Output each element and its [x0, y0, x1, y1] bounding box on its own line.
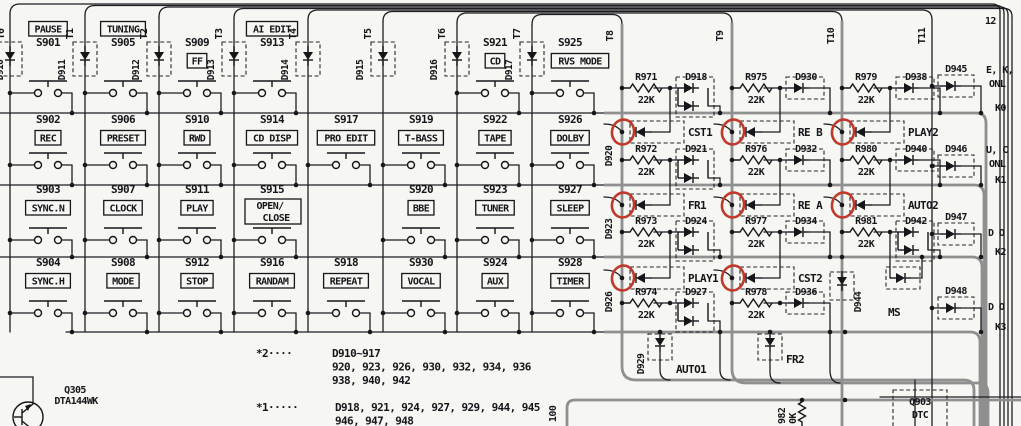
k-dest-label: ONL: [989, 79, 1006, 90]
junction-dot: [294, 330, 299, 335]
switch-caption: CLOCK: [109, 204, 137, 215]
note-star: *1·····: [256, 401, 298, 414]
switch-contact: [428, 310, 435, 317]
diode-icon: [946, 81, 955, 91]
switch-ref: S914: [260, 113, 285, 126]
switch-ref: S927: [558, 183, 582, 196]
terminal-label: T2: [139, 28, 150, 39]
resistor-ref: R974: [635, 287, 657, 298]
switch-ref: S907: [111, 183, 135, 196]
signal-label: AUTO2: [908, 199, 938, 212]
switch-ref: S917: [334, 113, 358, 126]
diode-ref: D911: [57, 59, 68, 80]
terminal-label: T9: [715, 30, 726, 41]
diode-icon: [746, 200, 755, 210]
switch-contact: [204, 310, 211, 317]
diode-icon: [794, 298, 803, 308]
switch-ref: S915: [260, 183, 284, 196]
switch-caption: DOLBY: [556, 134, 584, 145]
switch-caption: REPEAT: [330, 277, 363, 288]
signal-label: PLAY2: [908, 126, 938, 139]
switch-caption: SLEEP: [556, 204, 584, 215]
diode-icon: [684, 101, 693, 111]
switch-ref: S902: [36, 113, 60, 126]
switch-contact: [130, 237, 137, 244]
switch-caption: MODE: [112, 277, 134, 288]
resistor-ref: R979: [855, 72, 877, 83]
junction-dot: [828, 111, 833, 116]
terminal-label: T6: [437, 28, 448, 39]
diode-icon: [765, 338, 775, 346]
diode-icon: [946, 229, 955, 239]
diode-icon: [794, 227, 803, 237]
signal-label: AUTO1: [676, 363, 707, 376]
k-dest-label: U, C: [986, 145, 1008, 156]
diode-icon: [946, 303, 955, 313]
switch-caption: RWD: [189, 134, 206, 145]
switch-caption: OPEN/: [256, 201, 284, 212]
switch-contact: [204, 237, 211, 244]
switch-contact: [279, 162, 286, 169]
switch-ref: S903: [36, 183, 60, 196]
switch-caption: PLAY: [186, 204, 208, 215]
resistor-value: 22K: [748, 95, 765, 106]
switch-contact: [502, 90, 509, 97]
key-matrix-schematic: T0D910T1D911T2D912T3D913T4D914T5D915T6D9…: [0, 0, 1021, 426]
diode-icon: [684, 316, 693, 326]
switch-contact: [408, 310, 415, 317]
junction-dot: [70, 111, 75, 116]
switch-contact: [482, 310, 489, 317]
switch-ref: S912: [185, 256, 209, 269]
diode-icon: [794, 155, 803, 165]
switch-ref: S904: [36, 256, 61, 269]
diode-icon: [684, 245, 693, 255]
resistor-ref: R980: [855, 144, 877, 155]
switch-caption: TAPE: [484, 134, 506, 145]
diode-ref: D944: [853, 291, 864, 312]
terminal-label: T0: [0, 28, 7, 39]
diode-icon: [794, 83, 803, 93]
junction-dot: [592, 255, 597, 260]
switch-caption: REC: [40, 134, 57, 145]
wire: [308, 10, 318, 20]
switch-contact: [184, 90, 191, 97]
k-row-label: K2: [995, 247, 1006, 258]
switch-contact: [35, 162, 42, 169]
switch-ref: S918: [334, 256, 358, 269]
switch-caption: SYNC.H: [32, 277, 65, 288]
diode-icon: [856, 127, 865, 137]
junction-dot: [517, 183, 522, 188]
diode-icon: [655, 338, 665, 346]
wire: [922, 10, 932, 20]
k-row-label: K3: [995, 322, 1006, 333]
wire: [720, 332, 730, 380]
diode-icon: [904, 155, 913, 165]
wire: [722, 13, 732, 23]
note-star: *2····: [256, 347, 292, 360]
switch-caption: PRO EDIT: [324, 134, 368, 145]
resistor-value: 22K: [638, 310, 655, 321]
switch-caption: T-BASS: [405, 134, 438, 145]
junction-dot: [368, 183, 373, 188]
note-text: D918, 921, 924, 927, 929, 944, 945: [335, 401, 540, 414]
switch-ref: S920: [409, 183, 433, 196]
diode-ref: D946: [945, 144, 967, 155]
resistor-ref: 982: [777, 407, 788, 424]
pin-label: 12: [985, 16, 996, 27]
k-row-label: K0: [995, 103, 1006, 114]
switch-contact: [204, 162, 211, 169]
switch-contact: [482, 90, 489, 97]
resistor-value: 22K: [638, 167, 655, 178]
junction-dot: [443, 330, 448, 335]
wire: [234, 9, 244, 19]
junction-dot: [828, 255, 833, 260]
wire: [770, 352, 780, 383]
net-label: 100: [548, 405, 559, 422]
switch-ref: S909: [185, 36, 209, 49]
switch-ref: S901: [36, 36, 61, 49]
junction-dot: [592, 111, 597, 116]
diode-ref: D910: [0, 59, 6, 80]
switch-contact: [55, 310, 62, 317]
junction-dot: [843, 398, 848, 403]
diode-icon: [684, 173, 693, 183]
junction-dot: [219, 255, 224, 260]
switch-caption: TUNING: [107, 25, 140, 36]
junction-dot: [718, 255, 723, 260]
switch-contact: [428, 237, 435, 244]
diode-icon: [636, 273, 645, 283]
switch-contact: [279, 237, 286, 244]
switch-contact: [557, 162, 564, 169]
note-text: 938, 940, 942: [332, 374, 410, 387]
switch-contact: [110, 162, 117, 169]
signal-label: RE B: [798, 126, 823, 139]
wire: [383, 12, 393, 22]
switch-caption: VOCAL: [407, 277, 435, 288]
switch-contact: [577, 310, 584, 317]
diode-ref: D914: [280, 59, 291, 80]
junction-dot: [145, 183, 150, 188]
junction-dot: [368, 330, 373, 335]
k-dest-label: ONL: [989, 159, 1006, 170]
wire: [22, 421, 33, 426]
diode-icon: [154, 52, 164, 60]
signal-label: FR1: [688, 199, 707, 212]
diode-ref: D912: [131, 60, 142, 80]
diode-ref: D917: [504, 60, 515, 80]
switch-contact: [428, 162, 435, 169]
wire: [532, 15, 542, 25]
diode-icon: [746, 273, 755, 283]
resistor-ref: R971: [635, 72, 657, 83]
junction-dot: [70, 183, 75, 188]
junction-dot: [219, 330, 224, 335]
resistor-icon: [799, 402, 806, 426]
junction-dot: [668, 301, 673, 306]
junction-dot: [145, 255, 150, 260]
resistor-value: 0K: [788, 413, 799, 424]
switch-caption: PRESET: [107, 134, 140, 145]
switch-contact: [35, 237, 42, 244]
wire: [832, 12, 842, 22]
junction-dot: [592, 183, 597, 188]
switch-caption: SYNC.N: [32, 204, 65, 215]
junction-dot: [938, 111, 943, 116]
switch-contact: [110, 90, 117, 97]
switch-ref: S926: [558, 113, 583, 126]
diode-icon: [684, 83, 693, 93]
diode-icon: [80, 52, 90, 60]
diode-ref: D913: [206, 59, 217, 80]
switch-contact: [577, 162, 584, 169]
diode-ref: D945: [945, 64, 967, 75]
diode-icon: [896, 273, 905, 283]
switch-contact: [502, 237, 509, 244]
switch-contact: [557, 237, 564, 244]
signal-label: CST2: [798, 272, 822, 285]
resistor-ref: R975: [745, 72, 767, 83]
signal-label: CST1: [688, 126, 713, 139]
wire: [830, 332, 840, 383]
switch-ref: S924: [483, 256, 508, 269]
switch-ref: S911: [185, 183, 210, 196]
terminal-label: T5: [363, 28, 374, 39]
switch-caption: PAUSE: [34, 25, 62, 36]
switch-caption: AUX: [487, 277, 504, 288]
switch-ref: S908: [111, 256, 135, 269]
diode-icon: [746, 127, 755, 137]
wire: [567, 400, 575, 426]
terminal-label: T10: [826, 27, 837, 44]
k-dest-label: D O: [988, 302, 1005, 313]
switch-contact: [55, 237, 62, 244]
switch-contact: [55, 162, 62, 169]
resistor-ref: R978: [745, 287, 767, 298]
switch-contact: [557, 90, 564, 97]
diode-ref: D948: [945, 286, 967, 297]
switch-ref: S922: [483, 113, 507, 126]
switch-caption: AI EDIT: [253, 25, 292, 36]
switch-contact: [259, 162, 266, 169]
switch-contact: [184, 162, 191, 169]
diode-icon: [452, 52, 462, 60]
part-ref: Q903: [909, 397, 931, 408]
junction-dot: [778, 301, 783, 306]
switch-ref: S919: [409, 113, 433, 126]
junction-dot: [145, 330, 150, 335]
resistor-ref: R977: [745, 216, 767, 227]
switch-ref: S913: [260, 36, 284, 49]
switch-caption: TUNER: [481, 204, 510, 215]
diode-icon: [527, 52, 537, 60]
k-row-label: K1: [995, 175, 1006, 186]
switch-contact: [130, 310, 137, 317]
switch-ref: S925: [558, 36, 582, 49]
wire: [457, 13, 467, 23]
resistor-ref: R981: [855, 216, 877, 227]
switch-contact: [204, 90, 211, 97]
switch-caption: RVS MODE: [558, 57, 602, 68]
junction-dot: [219, 183, 224, 188]
switch-ref: S905: [111, 36, 135, 49]
junction-dot: [979, 111, 984, 116]
diode-icon: [636, 200, 645, 210]
junction-dot: [70, 255, 75, 260]
wire: [85, 6, 95, 16]
resistor-value: 22K: [748, 310, 765, 321]
diode-icon: [5, 52, 15, 60]
terminal-label: T11: [917, 27, 928, 44]
signal-label: RE A: [798, 199, 823, 212]
terminal-label: T3: [214, 28, 225, 39]
junction-dot: [294, 255, 299, 260]
switch-contact: [130, 162, 137, 169]
wire: [10, 4, 20, 14]
terminal-label: T8: [605, 30, 616, 41]
note-text: 920, 923, 926, 930, 932, 934, 936: [332, 361, 532, 374]
junction-dot: [840, 255, 845, 260]
diode-icon: [229, 52, 239, 60]
switch-ref: S928: [558, 256, 582, 269]
junction-dot: [70, 330, 75, 335]
switch-contact: [577, 237, 584, 244]
switch-contact: [333, 162, 340, 169]
switch-contact: [259, 237, 266, 244]
junction-dot: [979, 255, 984, 260]
diode-ref: D923: [604, 218, 615, 239]
junction-dot: [979, 330, 984, 335]
resistor-ref: R973: [635, 216, 657, 227]
switch-ref: S910: [185, 113, 209, 126]
switch-contact: [184, 237, 191, 244]
note-text: D910~917: [332, 347, 380, 360]
switch-caption: CD: [490, 57, 501, 68]
diode-ref: D916: [429, 59, 440, 80]
part-number: DTC: [912, 410, 929, 421]
junction-dot: [592, 330, 597, 335]
switch-contact: [557, 310, 564, 317]
diode-ref: D915: [355, 59, 366, 80]
diode-ref: D920: [604, 145, 615, 166]
switch-contact: [408, 162, 415, 169]
switch-contact: [55, 90, 62, 97]
junction-dot: [443, 255, 448, 260]
resistor-value: 22K: [748, 167, 765, 178]
diode-icon: [904, 227, 913, 237]
switch-contact: [279, 90, 286, 97]
signal-label: MS: [888, 306, 900, 319]
junction-dot: [920, 255, 925, 260]
switch-contact: [259, 90, 266, 97]
resistor-ref: R976: [745, 144, 767, 155]
switch-ref: S921: [483, 36, 508, 49]
junction-dot: [979, 183, 984, 188]
junction-dot: [294, 183, 299, 188]
note-text: 946, 947, 948: [335, 415, 413, 426]
diode-icon: [904, 245, 913, 255]
schematic-page: T0D910T1D911T2D912T3D913T4D914T5D915T6D9…: [0, 0, 1021, 426]
resistor-value: 22K: [748, 239, 765, 250]
switch-contact: [482, 162, 489, 169]
k-dest-label: D O: [988, 228, 1005, 239]
switch-contact: [333, 310, 340, 317]
switch-contact: [482, 237, 489, 244]
resistor-ref: R972: [635, 144, 657, 155]
junction-dot: [517, 255, 522, 260]
switch-ref: S906: [111, 113, 136, 126]
resistor-value: 22K: [858, 167, 875, 178]
switch-contact: [110, 310, 117, 317]
switch-contact: [110, 237, 117, 244]
switch-contact: [353, 310, 360, 317]
switch-caption: RANDAM: [256, 277, 289, 288]
resistor-value: 22K: [858, 239, 875, 250]
wire: [612, 15, 622, 25]
diode-ref: D947: [945, 212, 967, 223]
junction-dot: [219, 111, 224, 116]
diode-icon: [946, 161, 955, 171]
switch-ref: S923: [483, 183, 507, 196]
t8-line: [964, 380, 974, 426]
diode-icon: [684, 298, 693, 308]
switch-contact: [259, 310, 266, 317]
switch-caption: TIMER: [556, 277, 585, 288]
junction-dot: [517, 111, 522, 116]
switch-contact: [184, 310, 191, 317]
diode-icon: [303, 52, 313, 60]
signal-label: PLAY1: [688, 272, 719, 285]
wire: [159, 7, 169, 17]
resistor-value: 22K: [638, 95, 655, 106]
switch-caption: CLOSE: [262, 213, 290, 224]
diode-icon: [904, 83, 913, 93]
junction-dot: [800, 398, 805, 403]
switch-contact: [408, 237, 415, 244]
k-dest-label: E, K,: [986, 65, 1013, 76]
junction-dot: [294, 111, 299, 116]
switch-contact: [130, 90, 137, 97]
part-ref: Q305: [64, 385, 86, 396]
switch-caption: CD DISP: [253, 134, 292, 145]
switch-caption: BBE: [413, 204, 430, 215]
junction-dot: [145, 111, 150, 116]
part-number: DTA144WK: [54, 396, 98, 407]
switch-contact: [35, 90, 42, 97]
diode-icon: [684, 155, 693, 165]
diode-icon: [856, 200, 865, 210]
diode-ref: D929: [636, 353, 647, 374]
switch-caption: STOP: [186, 277, 208, 288]
signal-label: FR2: [786, 353, 804, 366]
switch-contact: [502, 162, 509, 169]
diode-icon: [378, 52, 388, 60]
switch-contact: [279, 310, 286, 317]
junction-dot: [843, 330, 848, 335]
switch-contact: [353, 162, 360, 169]
resistor-value: 22K: [638, 239, 655, 250]
terminal-label: T7: [512, 28, 523, 39]
junction-dot: [718, 111, 723, 116]
junction-dot: [517, 330, 522, 335]
diode-ref: D926: [604, 291, 615, 312]
wire: [660, 352, 670, 380]
switch-contact: [502, 310, 509, 317]
diode-icon: [684, 227, 693, 237]
